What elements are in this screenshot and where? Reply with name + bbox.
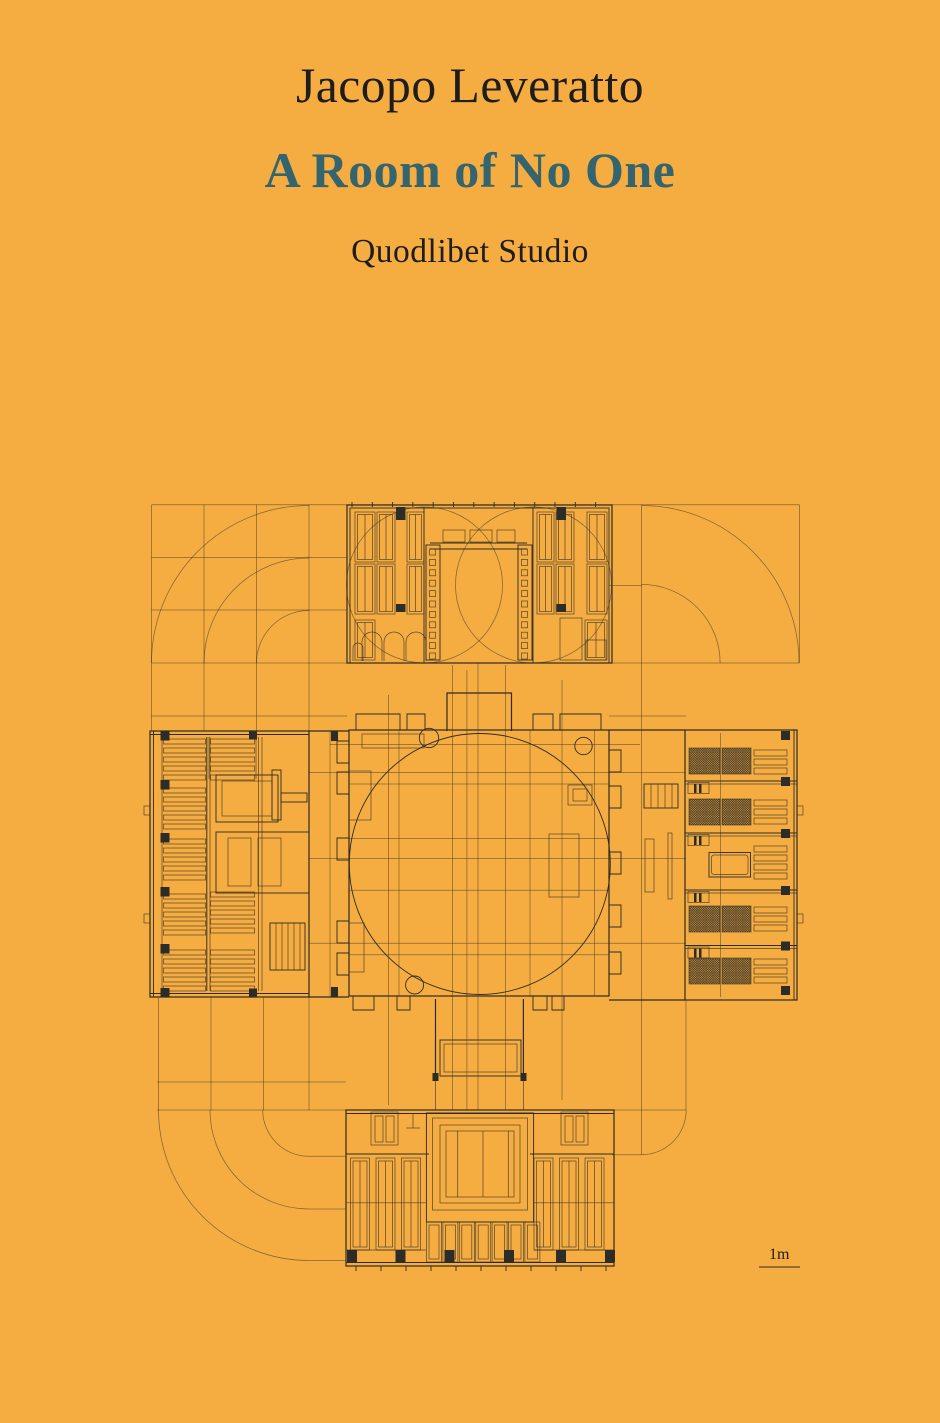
svg-text:1m: 1m bbox=[769, 1246, 790, 1263]
